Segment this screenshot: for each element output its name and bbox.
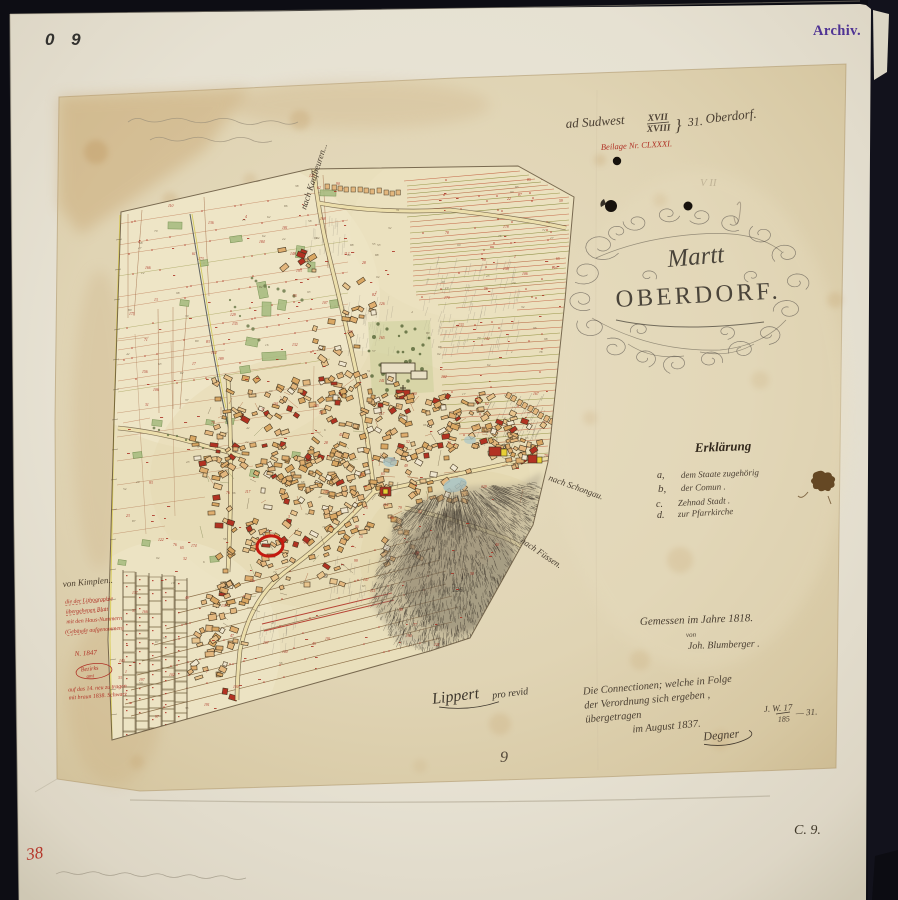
svg-text:73: 73 <box>322 525 326 529</box>
svg-text:24: 24 <box>282 237 286 241</box>
svg-text:133: 133 <box>458 323 464 327</box>
svg-text:94: 94 <box>376 275 380 279</box>
svg-text:V II: V II <box>700 177 718 189</box>
svg-text:168: 168 <box>320 217 326 221</box>
svg-text:— 31.: — 31. <box>794 707 817 719</box>
svg-text:21: 21 <box>261 408 265 412</box>
svg-text:83: 83 <box>515 185 519 189</box>
svg-text:27: 27 <box>317 348 321 352</box>
svg-text:53: 53 <box>377 243 381 247</box>
svg-text:93: 93 <box>307 290 311 294</box>
svg-text:87: 87 <box>155 640 159 644</box>
svg-text:a,: a, <box>657 470 665 481</box>
svg-text:48: 48 <box>185 596 189 600</box>
svg-text:65: 65 <box>556 257 560 261</box>
svg-text:34: 34 <box>463 607 467 611</box>
svg-text:88: 88 <box>438 345 442 349</box>
svg-text:80: 80 <box>128 308 132 312</box>
svg-text:55: 55 <box>372 242 376 246</box>
svg-text:47: 47 <box>318 495 322 499</box>
svg-text:d.: d. <box>657 510 665 521</box>
svg-text:4: 4 <box>411 310 413 314</box>
svg-text:94: 94 <box>156 556 160 560</box>
svg-text:74: 74 <box>273 570 277 574</box>
svg-text:56: 56 <box>484 287 488 291</box>
svg-text:c.: c. <box>656 499 663 510</box>
svg-text:166: 166 <box>145 266 151 270</box>
svg-text:32: 32 <box>388 226 392 230</box>
svg-text:79: 79 <box>211 421 215 425</box>
svg-text:129: 129 <box>230 313 236 317</box>
svg-text:Martt: Martt <box>665 241 726 273</box>
svg-text:79: 79 <box>544 454 548 458</box>
svg-text:94: 94 <box>437 352 441 356</box>
svg-text:22: 22 <box>507 197 511 201</box>
svg-text:20: 20 <box>136 480 140 484</box>
svg-text:64: 64 <box>262 234 266 238</box>
svg-text:62: 62 <box>317 186 321 190</box>
svg-text:59: 59 <box>559 199 563 203</box>
svg-text:102: 102 <box>441 375 447 379</box>
svg-text:156: 156 <box>142 370 148 374</box>
svg-text:16: 16 <box>265 343 269 347</box>
svg-text:24: 24 <box>245 440 249 444</box>
svg-text:72: 72 <box>542 228 546 232</box>
svg-text:von: von <box>686 631 697 639</box>
svg-text:34: 34 <box>521 305 525 309</box>
svg-text:83: 83 <box>206 340 210 344</box>
svg-text:120: 120 <box>347 330 353 334</box>
svg-text:83: 83 <box>425 516 429 520</box>
svg-text:67: 67 <box>339 372 343 376</box>
svg-text:173: 173 <box>198 257 204 261</box>
svg-text:94: 94 <box>271 531 275 535</box>
svg-text:44: 44 <box>461 567 465 571</box>
svg-text:57: 57 <box>456 519 460 523</box>
svg-text:58: 58 <box>223 537 227 541</box>
svg-text:5: 5 <box>197 445 199 449</box>
svg-text:67: 67 <box>448 525 452 529</box>
svg-text:45: 45 <box>339 433 343 437</box>
svg-text:15: 15 <box>242 218 246 222</box>
svg-text:70: 70 <box>447 441 451 445</box>
svg-text:16: 16 <box>341 563 345 567</box>
svg-text:42: 42 <box>126 352 130 356</box>
svg-text:52: 52 <box>418 510 422 514</box>
svg-text:48: 48 <box>241 418 245 422</box>
svg-text:69: 69 <box>163 636 167 640</box>
svg-text:65: 65 <box>381 472 385 476</box>
svg-text:59: 59 <box>347 319 351 323</box>
svg-text:121: 121 <box>434 643 440 647</box>
svg-text:28: 28 <box>324 441 328 445</box>
svg-text:126: 126 <box>379 302 385 306</box>
svg-text:32: 32 <box>379 401 383 405</box>
svg-text:93: 93 <box>149 481 153 485</box>
svg-text:71: 71 <box>144 338 148 342</box>
svg-text:98: 98 <box>176 291 180 295</box>
svg-text:82: 82 <box>180 371 184 375</box>
svg-text:110: 110 <box>168 204 174 208</box>
svg-text:27: 27 <box>473 512 477 516</box>
svg-text:49: 49 <box>404 464 408 468</box>
svg-text:174: 174 <box>191 544 197 548</box>
svg-text:24: 24 <box>316 236 320 240</box>
svg-text:12: 12 <box>141 271 145 275</box>
svg-text:115: 115 <box>370 589 376 593</box>
svg-text:132: 132 <box>292 343 298 347</box>
svg-text:184: 184 <box>259 240 265 244</box>
svg-text:70: 70 <box>477 336 481 340</box>
svg-text:77: 77 <box>211 474 215 478</box>
svg-text:18: 18 <box>504 393 508 397</box>
svg-text:78: 78 <box>539 350 543 354</box>
svg-text:185: 185 <box>778 714 791 724</box>
svg-text:38: 38 <box>24 843 45 864</box>
svg-text:1: 1 <box>511 350 513 354</box>
svg-text:23: 23 <box>186 460 190 464</box>
svg-text:59: 59 <box>480 556 484 560</box>
svg-text:3: 3 <box>288 515 290 519</box>
svg-text:189: 189 <box>218 357 224 361</box>
svg-text:99: 99 <box>354 559 358 563</box>
svg-text:84: 84 <box>259 285 263 289</box>
svg-text:100: 100 <box>233 685 239 689</box>
svg-text:135: 135 <box>232 322 238 326</box>
svg-text:68: 68 <box>301 480 305 484</box>
svg-text:193: 193 <box>296 269 302 273</box>
svg-text:44: 44 <box>219 589 223 593</box>
svg-text:106: 106 <box>522 272 528 276</box>
svg-text:77: 77 <box>527 411 531 415</box>
svg-text:96: 96 <box>423 423 427 427</box>
svg-text:79: 79 <box>398 506 402 510</box>
svg-text:0 9: 0 9 <box>45 30 87 49</box>
svg-text:28: 28 <box>379 412 383 416</box>
svg-text:94: 94 <box>339 491 343 495</box>
svg-text:amt: amt <box>86 674 95 680</box>
svg-text:C. 9.: C. 9. <box>794 823 821 838</box>
svg-text:6: 6 <box>324 428 326 432</box>
svg-text:31.: 31. <box>686 114 703 129</box>
svg-text:1: 1 <box>375 291 377 295</box>
svg-text:141: 141 <box>379 379 385 383</box>
svg-text:28: 28 <box>362 261 366 265</box>
svg-text:15: 15 <box>359 535 363 539</box>
svg-text:143: 143 <box>323 490 329 494</box>
svg-text:36: 36 <box>232 491 236 495</box>
svg-text:58: 58 <box>319 411 323 415</box>
svg-text:94: 94 <box>389 633 393 637</box>
svg-text:76: 76 <box>226 491 230 495</box>
svg-text:59: 59 <box>399 608 403 612</box>
svg-text:42: 42 <box>246 426 250 430</box>
svg-text:85: 85 <box>527 178 531 182</box>
svg-text:45: 45 <box>312 642 316 646</box>
svg-text:75: 75 <box>364 506 368 510</box>
svg-text:35: 35 <box>474 424 478 428</box>
svg-text:99: 99 <box>269 389 273 393</box>
svg-text:39: 39 <box>185 314 189 318</box>
svg-text:53: 53 <box>250 579 254 583</box>
svg-text:98: 98 <box>427 570 431 574</box>
svg-text:102: 102 <box>169 673 175 677</box>
svg-text:164: 164 <box>211 351 217 355</box>
svg-text:61: 61 <box>192 252 196 256</box>
svg-text:33: 33 <box>118 676 122 680</box>
svg-text:129: 129 <box>481 485 487 489</box>
svg-text:54: 54 <box>123 487 127 491</box>
svg-text:23: 23 <box>126 514 130 518</box>
svg-text:100: 100 <box>411 392 417 396</box>
svg-text:89: 89 <box>426 331 430 335</box>
svg-text:96: 96 <box>533 326 537 330</box>
svg-text:148: 148 <box>290 252 296 256</box>
svg-text:140: 140 <box>119 659 125 663</box>
svg-text:Archiv.: Archiv. <box>813 23 861 39</box>
svg-text:27: 27 <box>138 246 142 250</box>
svg-text:76: 76 <box>498 234 502 238</box>
svg-text:181: 181 <box>282 226 288 230</box>
svg-text:95: 95 <box>293 294 297 298</box>
svg-text:Erklärung: Erklärung <box>694 438 752 455</box>
svg-text:61: 61 <box>232 553 236 557</box>
svg-text:158: 158 <box>503 267 509 271</box>
svg-text:80: 80 <box>195 339 199 343</box>
svg-text:32: 32 <box>183 557 187 561</box>
svg-text:166: 166 <box>142 610 148 614</box>
svg-text:31: 31 <box>396 208 400 212</box>
svg-text:86: 86 <box>355 525 359 529</box>
svg-text:178: 178 <box>503 225 509 229</box>
svg-text:61: 61 <box>396 404 400 408</box>
svg-text:51: 51 <box>367 369 371 373</box>
svg-text:122: 122 <box>158 538 164 542</box>
svg-text:13: 13 <box>154 298 158 302</box>
svg-text:70: 70 <box>512 281 516 285</box>
svg-text:63: 63 <box>158 362 162 366</box>
svg-text:115: 115 <box>304 541 310 545</box>
svg-text:43: 43 <box>271 621 275 625</box>
svg-text:6: 6 <box>203 560 205 564</box>
svg-text:142: 142 <box>484 337 490 341</box>
svg-text:194: 194 <box>406 634 412 638</box>
svg-text:112: 112 <box>383 503 389 507</box>
svg-text:165: 165 <box>313 404 319 408</box>
svg-text:31: 31 <box>145 403 149 407</box>
svg-text:XVIII: XVIII <box>646 123 672 135</box>
svg-text:N. 1847: N. 1847 <box>73 648 97 658</box>
svg-text:58: 58 <box>308 219 312 223</box>
svg-text:87: 87 <box>132 519 136 523</box>
svg-text:40: 40 <box>495 543 499 547</box>
svg-text:3: 3 <box>548 221 550 225</box>
svg-text:78: 78 <box>445 231 449 235</box>
svg-text:19: 19 <box>337 440 341 444</box>
svg-text:64: 64 <box>487 363 491 367</box>
svg-text:116: 116 <box>552 266 558 270</box>
svg-text:61: 61 <box>476 535 480 539</box>
svg-text:191: 191 <box>204 703 210 707</box>
svg-text:62: 62 <box>485 402 489 406</box>
svg-text:70: 70 <box>154 229 158 233</box>
svg-text:62: 62 <box>267 215 271 219</box>
svg-text:136: 136 <box>208 221 214 225</box>
svg-text:66: 66 <box>390 516 394 520</box>
svg-text:68: 68 <box>139 241 143 245</box>
svg-text:der Comun .: der Comun . <box>681 481 726 493</box>
svg-text:58: 58 <box>470 572 474 576</box>
svg-text:90: 90 <box>457 243 461 247</box>
svg-text:49: 49 <box>347 253 351 257</box>
svg-text:34: 34 <box>305 512 309 516</box>
svg-text:35: 35 <box>185 706 189 710</box>
svg-text:56: 56 <box>279 661 283 665</box>
svg-text:106: 106 <box>153 388 159 392</box>
svg-text:43: 43 <box>367 431 371 435</box>
svg-text:100: 100 <box>282 650 288 654</box>
svg-text:37: 37 <box>185 398 189 402</box>
svg-text:88: 88 <box>350 243 354 247</box>
svg-text:86: 86 <box>284 204 288 208</box>
svg-text:1: 1 <box>514 255 516 259</box>
svg-text:27: 27 <box>550 236 554 240</box>
svg-text:b,: b, <box>658 483 667 495</box>
svg-text:90: 90 <box>482 258 486 262</box>
svg-text:10: 10 <box>379 490 383 494</box>
svg-text:17: 17 <box>462 392 466 396</box>
svg-text:50: 50 <box>139 681 143 685</box>
svg-text:90: 90 <box>336 182 340 186</box>
svg-text:138: 138 <box>221 604 227 608</box>
svg-text:38: 38 <box>295 184 299 188</box>
svg-text:9: 9 <box>500 749 508 766</box>
svg-text:40: 40 <box>441 280 445 284</box>
svg-text:88: 88 <box>375 253 379 257</box>
svg-text:65: 65 <box>180 546 184 550</box>
svg-text:1: 1 <box>125 670 127 674</box>
svg-text:165: 165 <box>379 336 385 340</box>
svg-text:52: 52 <box>406 440 410 444</box>
svg-text:82: 82 <box>300 581 304 585</box>
svg-text:76: 76 <box>173 543 177 547</box>
svg-text:85: 85 <box>525 436 529 440</box>
svg-text:90: 90 <box>510 190 514 194</box>
svg-text:19: 19 <box>171 581 175 585</box>
svg-text:63: 63 <box>362 584 366 588</box>
svg-text:19: 19 <box>445 286 449 290</box>
svg-text:98: 98 <box>544 337 548 341</box>
svg-text:175: 175 <box>129 312 135 316</box>
svg-text:191: 191 <box>325 637 331 641</box>
svg-text:161: 161 <box>273 402 279 406</box>
svg-text:76: 76 <box>405 530 409 534</box>
svg-text:170: 170 <box>444 296 450 300</box>
svg-text:182: 182 <box>359 473 365 477</box>
svg-text:23: 23 <box>486 274 490 278</box>
svg-text:57: 57 <box>372 349 376 353</box>
